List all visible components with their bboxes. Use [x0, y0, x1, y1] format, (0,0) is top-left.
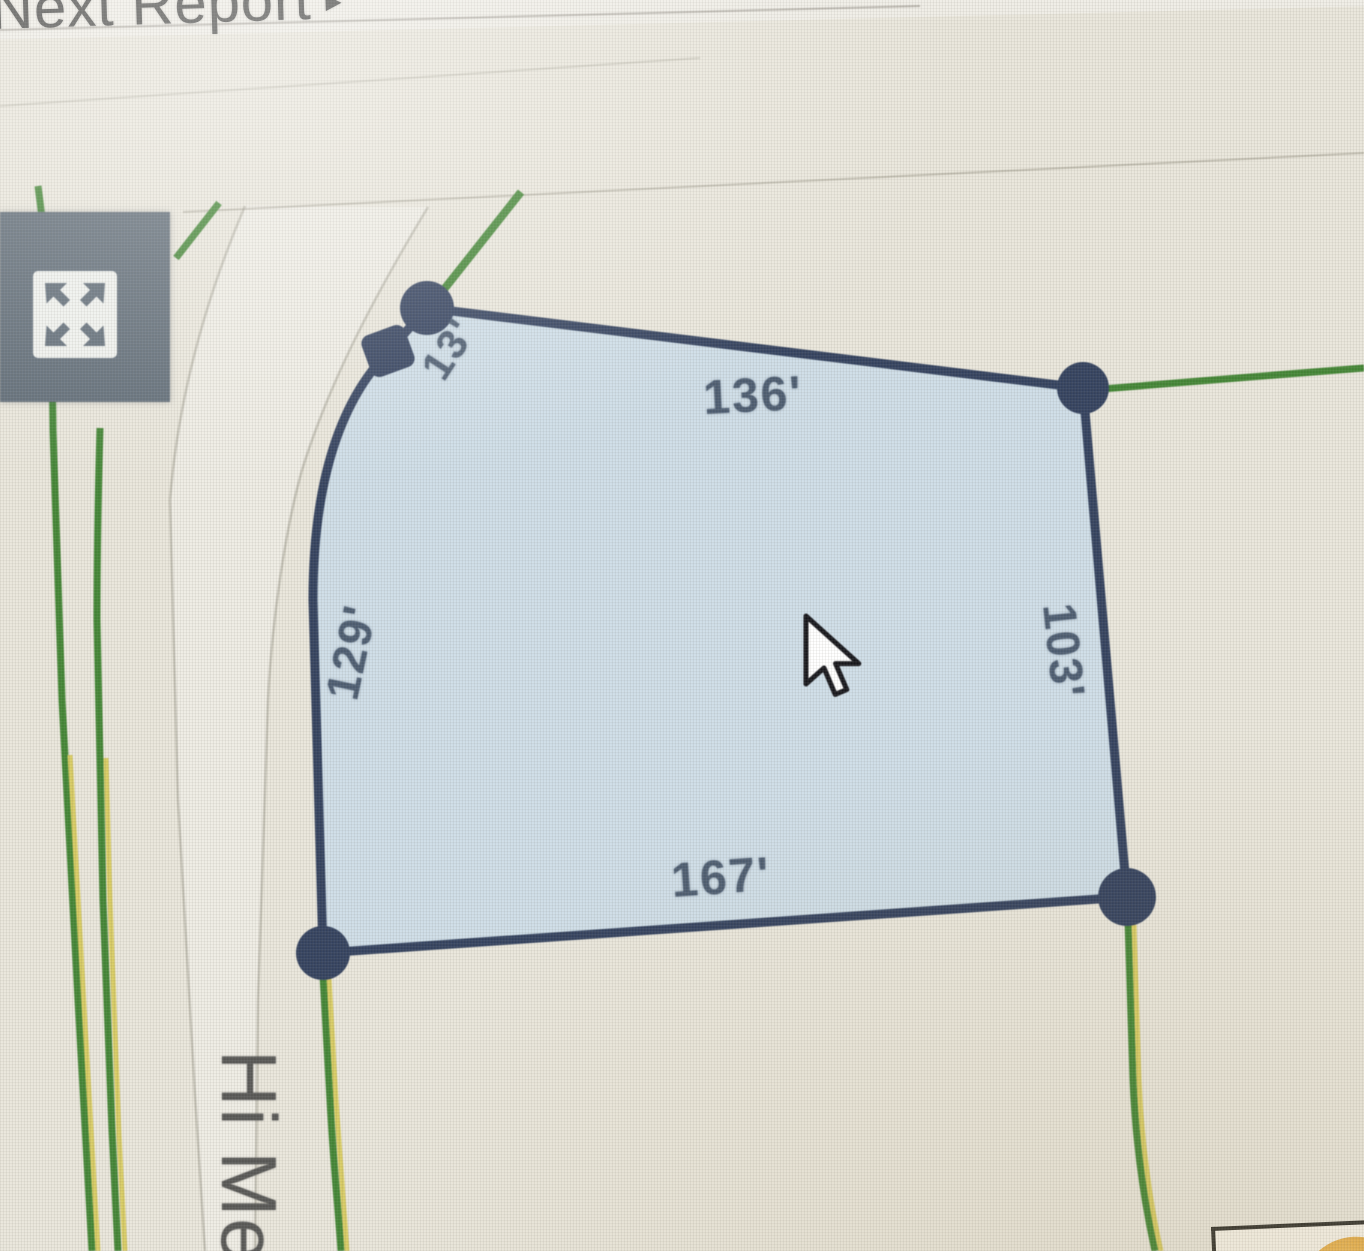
faint-panel-line [0, 58, 700, 106]
faint-road-line-top [183, 153, 1364, 212]
parcel-vertex-bottom-right [1098, 868, 1156, 926]
dimension-label-top: 136' [702, 366, 804, 426]
street-label: Hi Mes [203, 1050, 294, 1251]
dropdown-chevron-icon: ▸ [325, 0, 343, 19]
dimension-label-bottom: 167' [669, 847, 772, 909]
boundary-line-green-diagonal [434, 192, 521, 302]
boundary-line-yellow-far-left [70, 755, 98, 1251]
parcel-vertex-bottom-left [296, 926, 350, 980]
expand-arrows-icon [33, 271, 117, 358]
parcel-vertex-top-right [1057, 362, 1109, 414]
boundary-line-green-right [1090, 368, 1364, 390]
map-canvas[interactable]: Next Report▸ 136' 13' 129' 103' 167' Hi … [0, 0, 1364, 1251]
orange-circle-marker-icon [1298, 1234, 1364, 1251]
dimension-label-right: 103' [1032, 601, 1096, 702]
fullscreen-button[interactable] [0, 212, 170, 402]
